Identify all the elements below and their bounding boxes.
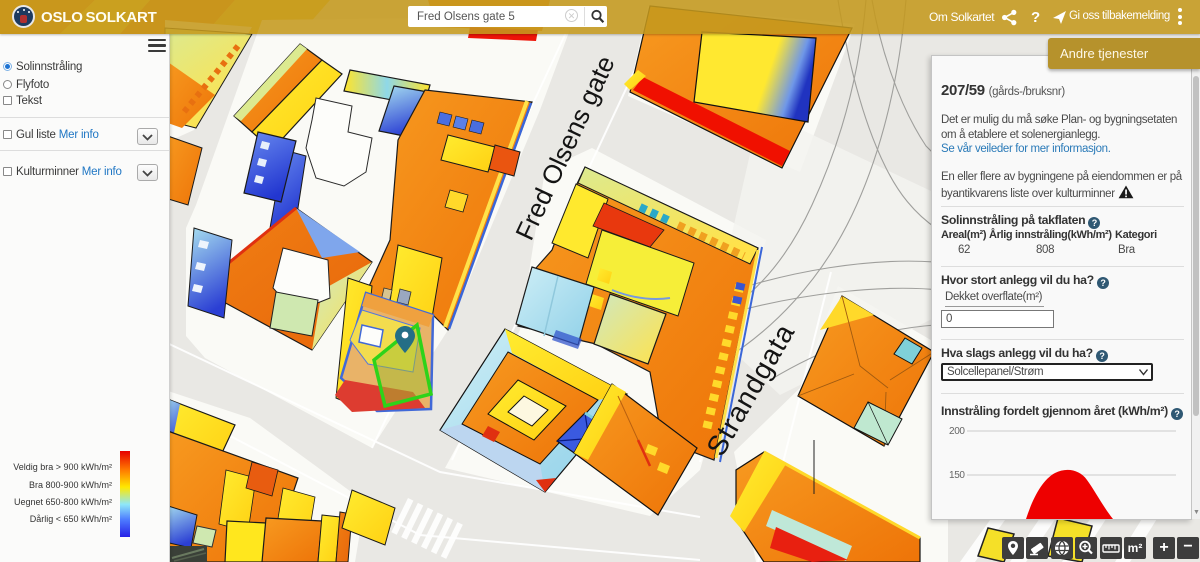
svg-text:150: 150 — [949, 470, 965, 481]
svg-text:200: 200 — [949, 426, 965, 437]
